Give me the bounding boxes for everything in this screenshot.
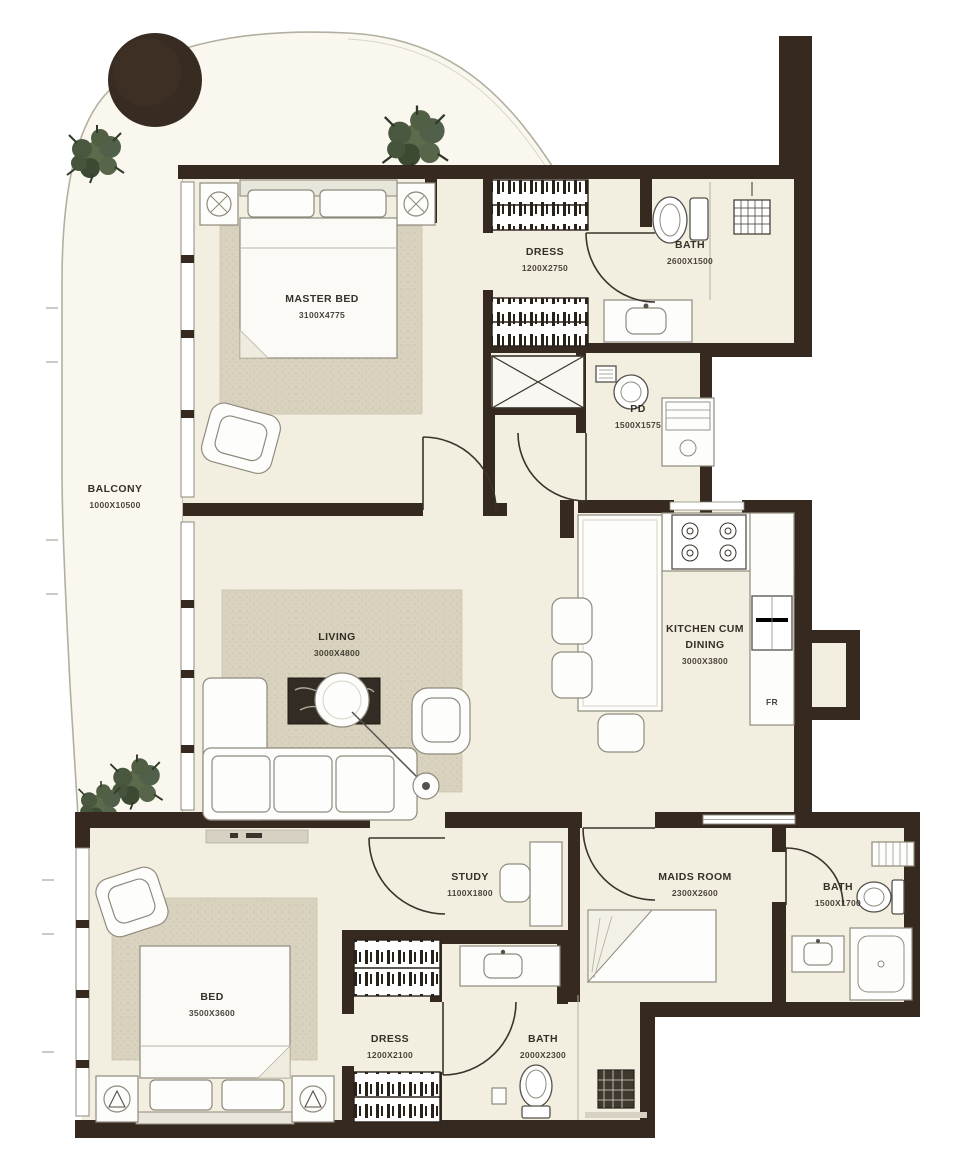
dress-top-label: DRESS [526,246,564,258]
lamp-icon [104,1086,130,1112]
balcony-label: BALCONY [88,483,143,495]
single-bed-icon [588,910,716,982]
cabinet-icon [872,842,914,866]
study-dims: 1100X1800 [447,888,493,898]
bath-top-dims: 2600X1500 [667,256,713,266]
master-bed-label: MASTER BED [285,293,358,305]
armchair-icon [412,688,470,754]
dress2-label: DRESS [371,1033,409,1045]
pd-dims: 1500X1575 [615,420,661,430]
bed2-label: BED [200,991,223,1003]
desk-icon [530,842,562,926]
wardrobe-icon [354,1072,440,1122]
maids-room-dims: 2300X2600 [672,888,718,898]
kitchen-label: KITCHEN CUM [666,623,744,635]
toilet-icon [653,197,708,243]
bath-top-label: BATH [675,239,705,251]
fridge-icon [752,596,792,650]
utility-unit-icon [662,398,714,466]
lamp-icon [300,1086,326,1112]
kitchen-label2: DINING [685,639,724,651]
bath2-label: BATH [528,1033,558,1045]
tv-console-icon [206,830,308,843]
floor-plan: MASTER BED 3100X4775 DRESS 1200X2750 [0,0,956,1164]
bath-right-dims: 1500X1700 [815,898,861,908]
tree-icon [108,33,202,127]
sink-icon [604,300,692,342]
dress2-dims: 1200X2100 [367,1050,413,1060]
master-bed-dims: 3100X4775 [299,310,345,320]
wardrobe-icon [354,940,440,996]
dress-top-dims: 1200X2750 [522,263,568,273]
balcony-dims: 1000X10500 [89,500,140,510]
stove-icon [672,515,746,569]
side-table-icon [315,673,369,727]
living-dims: 3000X4800 [314,648,360,658]
bed2-dims: 3500X3600 [189,1008,235,1018]
floor-plan-canvas: MASTER BED 3100X4775 DRESS 1200X2750 [0,0,956,1164]
lamp-icon [404,192,428,216]
toilet-icon [857,880,904,914]
sink-icon [460,946,560,986]
shaft-icon [492,356,584,408]
kitchen-dims: 3000X3800 [682,656,728,666]
pd-label: PD [630,403,645,415]
bath2-dims: 2000X2300 [520,1050,566,1060]
lamp-icon [207,192,231,216]
desk-chair-icon [500,864,530,902]
fridge-label: FR [766,697,778,707]
sink-icon [792,936,844,972]
living-label: LIVING [318,631,355,643]
wardrobe-icon [492,180,588,230]
wardrobe-icon [492,298,588,346]
maids-room-label: MAIDS ROOM [658,871,731,883]
study-label: STUDY [451,871,489,883]
shower-tray-icon [850,928,912,1000]
